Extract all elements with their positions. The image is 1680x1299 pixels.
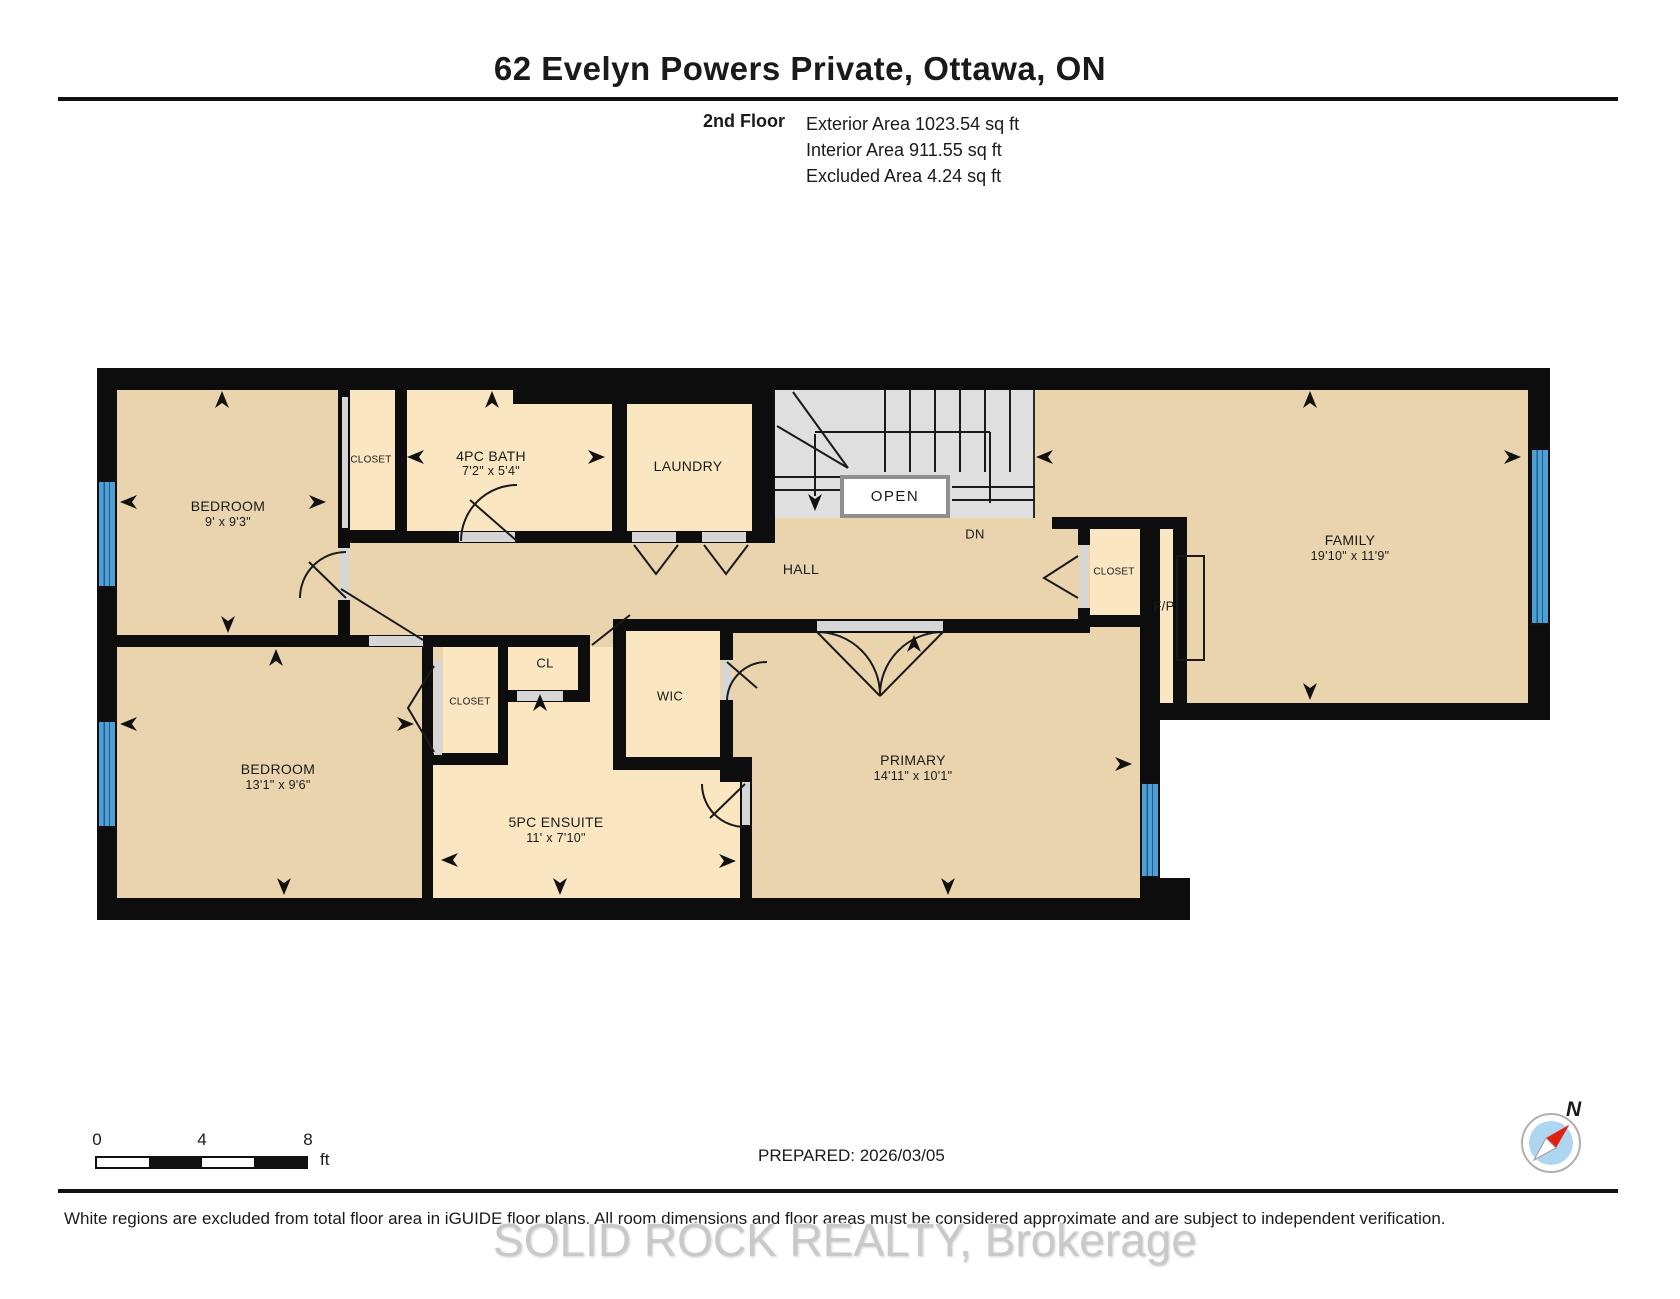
door-opening (1080, 545, 1088, 608)
floor-label: 2nd Floor (560, 111, 785, 132)
wall (97, 368, 117, 920)
room-dims-family: 19'10" x 11'9" (1311, 549, 1390, 563)
area-stats: Exterior Area 1023.54 sq ft Interior Are… (806, 111, 1019, 189)
wall (422, 647, 433, 898)
room-label-bedroom1: BEDROOM (191, 498, 265, 514)
scale-tick-8: 8 (303, 1130, 312, 1150)
door-opening (342, 397, 348, 528)
window (1530, 448, 1550, 625)
excluded-area: Excluded Area 4.24 sq ft (806, 163, 1019, 189)
wall (752, 390, 775, 531)
wall (433, 753, 508, 765)
scale-segment (149, 1158, 201, 1167)
window (1140, 782, 1160, 878)
room-label-ensuite: 5PC ENSUITE (508, 814, 603, 830)
scale-segment (254, 1158, 306, 1167)
room-label-cl: CL (536, 656, 553, 671)
wall (513, 390, 775, 404)
room-dims-bedroom2: 13'1" x 9'6" (245, 778, 310, 792)
exterior-area: Exterior Area 1023.54 sq ft (806, 111, 1019, 137)
stair-open-label: OPEN (871, 488, 920, 505)
scale-tick-4: 4 (197, 1130, 206, 1150)
door-opening (722, 660, 731, 700)
door-opening (459, 532, 515, 542)
room-label-hall: HALL (783, 561, 819, 577)
room-label-bedroom2: BEDROOM (241, 761, 315, 777)
scale-tick-0: 0 (92, 1130, 101, 1150)
room-dims-bedroom1: 9' x 9'3" (205, 515, 251, 529)
wall (720, 631, 733, 660)
wall (613, 757, 733, 770)
compass-north-label: N (1566, 1098, 1581, 1122)
header-divider (58, 97, 1618, 101)
room-label-wic: WIC (657, 689, 683, 704)
window (97, 720, 117, 828)
footer-divider (58, 1189, 1618, 1193)
stair-open-box: OPEN (840, 475, 950, 518)
room-label-laundry: LAUNDRY (654, 458, 723, 474)
room-dims-ensuite: 11' x 7'10" (526, 831, 586, 845)
room-ensuite-main (433, 777, 750, 898)
fireplace-nook (1160, 529, 1173, 703)
wall (97, 898, 1190, 920)
room-dims-primary: 14'11" x 10'1" (874, 769, 953, 783)
door-opening (702, 532, 746, 542)
page-title: 62 Evelyn Powers Private, Ottawa, ON (0, 50, 1600, 88)
door-opening (434, 660, 442, 755)
scale-segment (202, 1158, 254, 1167)
excluded-white-region (1160, 720, 1550, 900)
door-opening (742, 782, 750, 825)
brokerage-watermark: SOLID ROCK REALTY, Brokerage (493, 1213, 1197, 1267)
wall (395, 390, 407, 530)
room-ensuite-notch (433, 765, 508, 777)
scale-segment (97, 1158, 149, 1167)
wall (1160, 703, 1550, 720)
door-opening (517, 691, 563, 701)
wall (578, 635, 590, 702)
scale-bar-segments (95, 1156, 308, 1169)
interior-area: Interior Area 911.55 sq ft (806, 137, 1019, 163)
room-label-primary: PRIMARY (880, 752, 946, 768)
room-label-bath: 4PC BATH (456, 448, 526, 464)
room-label-closet-hall: CLOSET (1093, 567, 1134, 578)
room-label-closet-bottom: CLOSET (449, 697, 490, 708)
door-opening (817, 621, 943, 631)
stairs-dn-label: DN (965, 527, 984, 542)
wall (407, 531, 627, 543)
door-opening (369, 636, 423, 646)
scale-unit: ft (320, 1150, 329, 1170)
wall (97, 368, 1550, 390)
door-opening (340, 548, 349, 600)
wall (612, 404, 627, 531)
wall (1140, 529, 1160, 782)
room-label-family: FAMILY (1325, 532, 1376, 548)
wall (613, 619, 733, 631)
wall (720, 757, 752, 782)
window (97, 480, 117, 588)
wall (117, 635, 578, 647)
room-label-closet-top: CLOSET (350, 455, 391, 466)
door-opening (632, 532, 676, 542)
ensuite-corridor (590, 647, 613, 702)
wall (1140, 878, 1190, 920)
prepared-date: PREPARED: 2026/03/05 (758, 1146, 945, 1166)
floor-plan-page: 62 Evelyn Powers Private, Ottawa, ON 2nd… (0, 0, 1680, 1299)
wall (1052, 517, 1187, 529)
room-dims-bath: 7'2" x 5'4" (462, 464, 520, 478)
wall (338, 530, 407, 543)
wall (613, 631, 626, 757)
fireplace-label: F/P (1153, 599, 1174, 614)
fireplace-hearth (1176, 555, 1205, 661)
